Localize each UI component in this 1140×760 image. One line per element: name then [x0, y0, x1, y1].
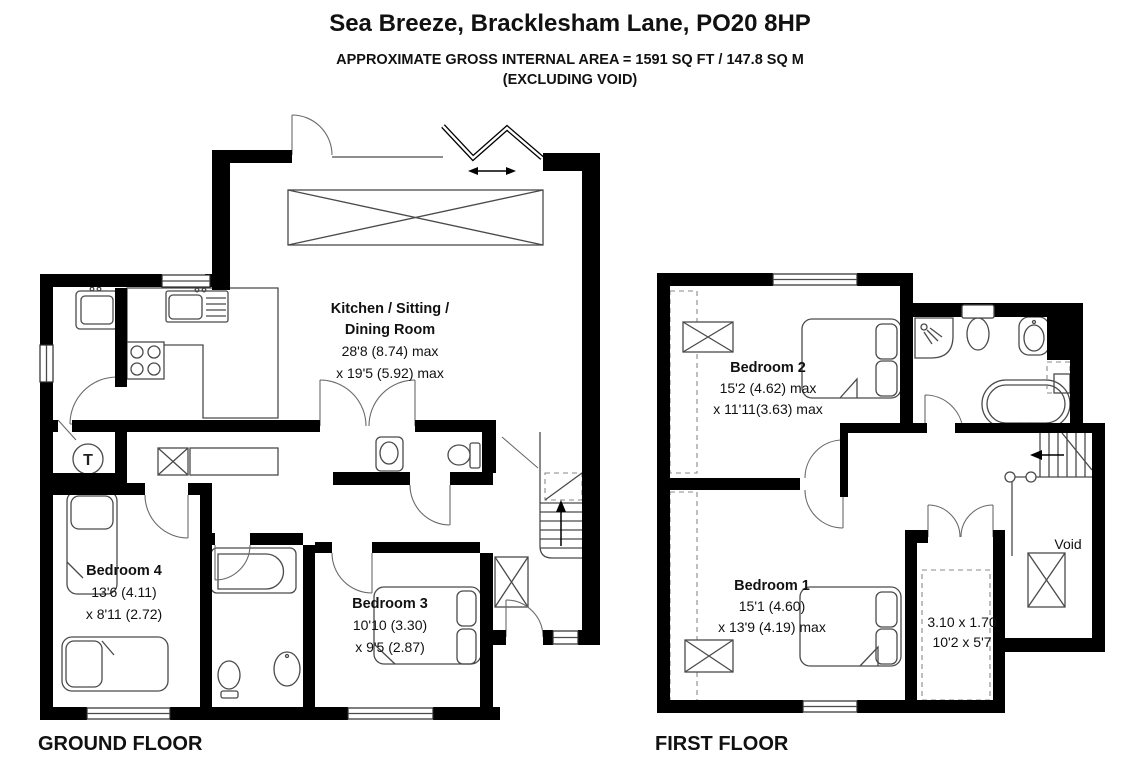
room-dims: 3.10 x 1.70 — [927, 614, 996, 630]
room-name: Bedroom 2 — [730, 360, 806, 376]
cistern-icon — [962, 305, 994, 318]
rooflight-icon — [683, 322, 733, 352]
header: Sea Breeze, Bracklesham Lane, PO20 8HP A… — [329, 10, 811, 88]
floorplan-drawing: Sea Breeze, Bracklesham Lane, PO20 8HP A… — [0, 0, 1140, 760]
eaves-line — [670, 492, 697, 705]
room-name: Dining Room — [345, 322, 435, 338]
shower-icon — [915, 318, 953, 358]
room-dims: 10'10 (3.30) — [353, 617, 427, 633]
rooflight-icon — [685, 640, 733, 672]
utility-sink-icon — [76, 287, 118, 329]
toilet-icon — [218, 661, 240, 698]
room-name: Bedroom 4 — [86, 563, 162, 579]
room-dims: 15'1 (4.60) — [739, 598, 806, 614]
rooflight-icon — [1028, 553, 1065, 607]
basin-icon — [1019, 317, 1049, 355]
tank-label: T — [83, 452, 93, 469]
tank-icon: T — [73, 444, 103, 474]
ground-floor-label: GROUND FLOOR — [38, 733, 203, 755]
room-name: Kitchen / Sitting / — [331, 301, 449, 317]
cupboard-icon — [158, 448, 278, 475]
double-bed-icon — [802, 319, 901, 398]
eaves-line — [670, 291, 697, 473]
room-dims: 28'8 (8.74) max — [342, 343, 439, 359]
cupboard-icon — [495, 557, 528, 607]
area-line-1: APPROXIMATE GROSS INTERNAL AREA = 1591 S… — [336, 52, 804, 68]
kitchen-counter-icon — [127, 288, 278, 418]
door-arcs — [805, 395, 993, 537]
newel-post-icon — [1026, 472, 1036, 482]
basin-icon — [274, 652, 300, 686]
first-floor-plan: Bedroom 2 15'2 (4.62) max x 11'11(3.63) … — [655, 273, 1105, 755]
room-dims: x 19'5 (5.92) max — [336, 365, 444, 381]
single-bed-icon — [62, 637, 168, 691]
room-name: Bedroom 1 — [734, 578, 810, 594]
room-dims: x 13'9 (4.19) max — [718, 619, 826, 635]
newel-post-icon — [1005, 472, 1015, 482]
floorplan-page: Sea Breeze, Bracklesham Lane, PO20 8HP A… — [0, 0, 1140, 760]
bifold-door-icon — [443, 126, 542, 175]
first-floor-label: FIRST FLOOR — [655, 733, 789, 755]
page-title: Sea Breeze, Bracklesham Lane, PO20 8HP — [329, 10, 811, 37]
room-dims: 10'2 x 5'7 — [932, 634, 991, 650]
room-dims: x 11'11(3.63) max — [713, 401, 823, 417]
area-line-2: (EXCLUDING VOID) — [503, 72, 638, 88]
room-dims: x 9'5 (2.87) — [355, 639, 425, 655]
toilet-icon — [448, 443, 480, 468]
void-label: Void — [1054, 536, 1081, 552]
rooflight-icon — [288, 190, 543, 245]
up-arrow-icon — [1030, 450, 1042, 460]
room-dims: 13'6 (4.11) — [91, 584, 156, 600]
ground-floor-plan: T — [38, 115, 600, 755]
bedroom3-label: Bedroom 3 10'10 (3.30) x 9'5 (2.87) — [352, 596, 428, 655]
kitchen-label: Kitchen / Sitting / Dining Room 28'8 (8.… — [331, 301, 449, 381]
bath-icon — [211, 548, 296, 593]
bedroom4-label: Bedroom 4 13'6 (4.11) x 8'11 (2.72) — [86, 563, 162, 622]
basin-icon — [376, 437, 403, 471]
up-arrow-icon — [556, 500, 566, 512]
room-dims: 15'2 (4.62) max — [720, 380, 817, 396]
bath-icon — [982, 380, 1070, 428]
eaves-storage-label: 3.10 x 1.70 10'2 x 5'7 — [927, 614, 996, 650]
stairs-icon — [540, 432, 582, 558]
room-dims: x 8'11 (2.72) — [86, 606, 162, 622]
room-name: Bedroom 3 — [352, 596, 428, 612]
